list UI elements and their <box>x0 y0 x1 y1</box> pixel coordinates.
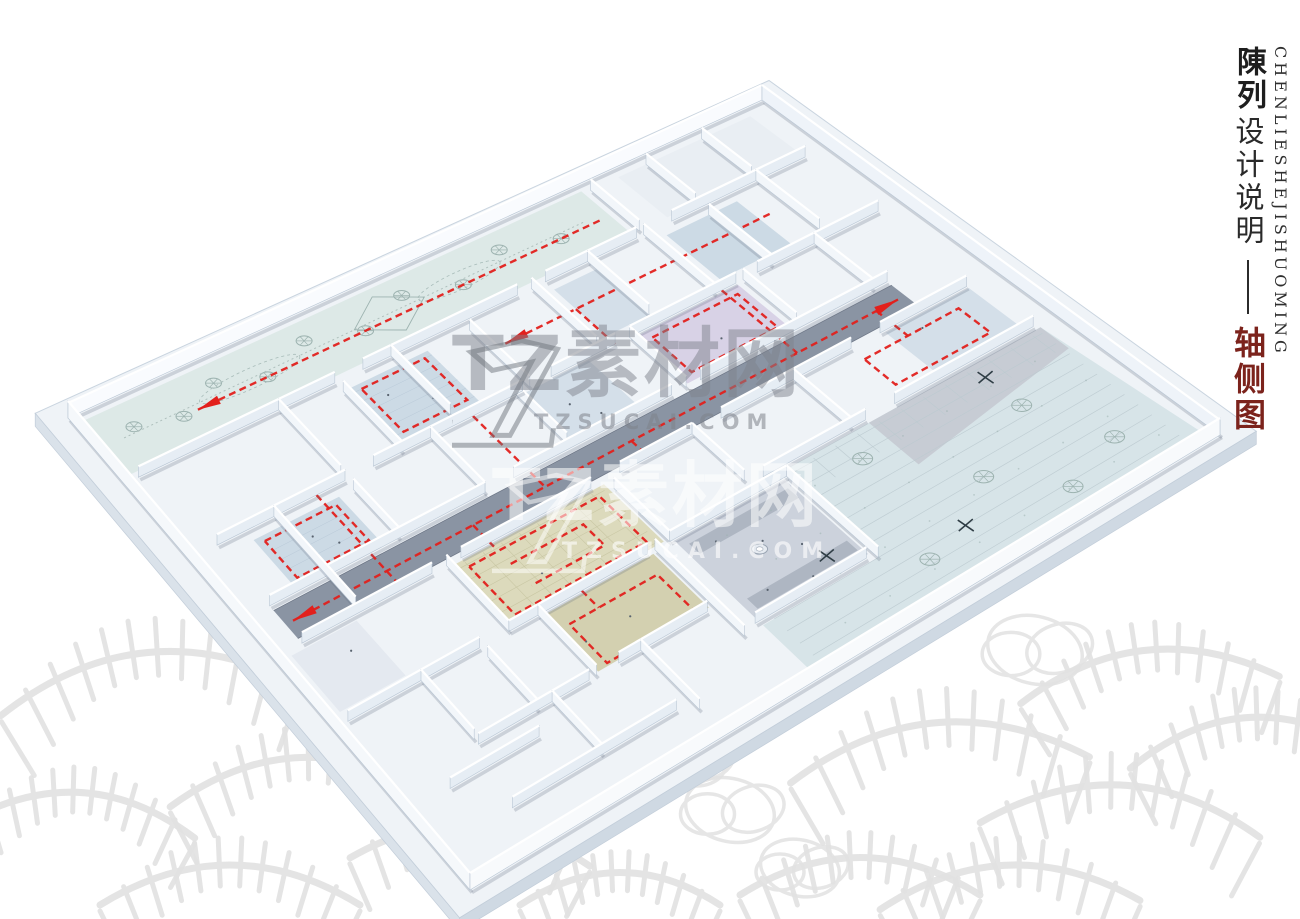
title-subtitle-red: 轴侧图 <box>1225 326 1271 434</box>
axonometric-floor-plan <box>0 0 1300 919</box>
title-english-vertical: CHENLIESHEJISHUOMING <box>1271 46 1290 456</box>
title-series-bold: 陳列 <box>1226 46 1270 112</box>
title-block: 陳列 设计说明 轴侧图 CHENLIESHEJISHUOMING <box>1229 46 1290 456</box>
title-chinese-column: 陳列 设计说明 轴侧图 <box>1229 46 1267 434</box>
title-series-regular: 设计说明 <box>1227 116 1269 248</box>
presentation-board: TZ素材网 TZSUCAI.COM TZ素材网 TZSUCAI.COM 陳列 设… <box>0 0 1300 919</box>
title-dash-separator <box>1247 260 1249 314</box>
